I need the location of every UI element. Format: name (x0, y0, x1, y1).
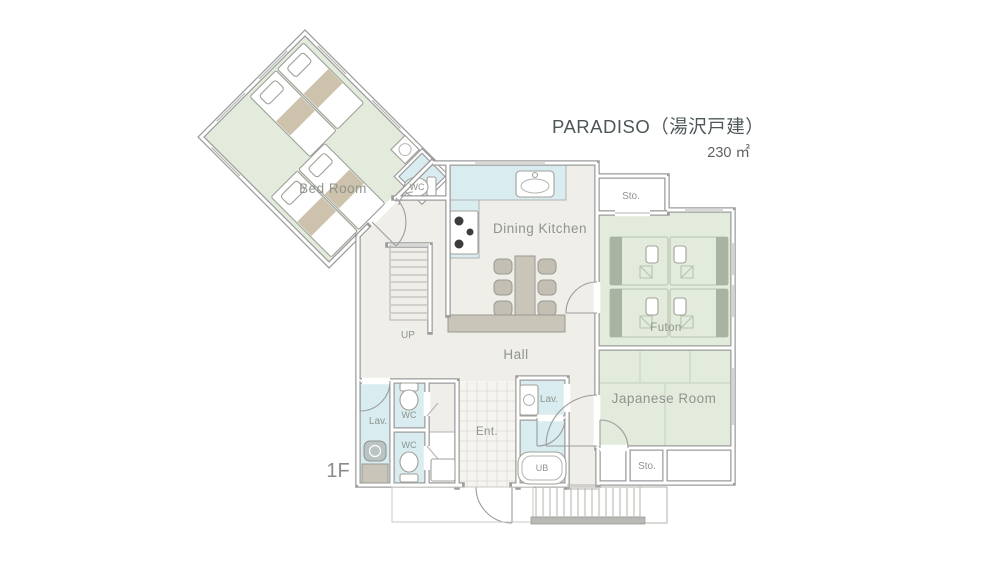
deck-steps (531, 487, 667, 524)
toilet-icon (400, 383, 418, 410)
washer-icon (362, 464, 388, 483)
dk-step (448, 315, 565, 332)
room-label-futon: Futon (650, 322, 681, 334)
room-label-entrance: Ent. (476, 426, 498, 438)
room-label-hall: Hall (503, 347, 528, 362)
room-label-unit-bath: UB (536, 463, 549, 473)
dining-table (494, 256, 556, 318)
room-label-storage-bottom: Sto. (638, 461, 656, 472)
page-title: PARADISO（湯沢戸建） (552, 116, 764, 137)
room-label-bedroom-wc: WC (410, 182, 425, 192)
room-label-japanese-room: Japanese Room (612, 391, 717, 406)
room-label-lavatory-left: Lav. (369, 416, 387, 427)
room-label-bedroom: Bed Room (299, 181, 367, 196)
room-label-wc-lower: WC (402, 440, 417, 450)
area-label: 230 ㎡ (707, 144, 750, 161)
toilet-icon (400, 452, 418, 482)
floor-label: 1F (326, 460, 349, 482)
room-label-wc-upper: WC (402, 410, 417, 420)
room-label-dining-kitchen: Dining Kitchen (493, 221, 587, 236)
room-label-lavatory-right: Lav. (540, 394, 558, 405)
shoe-cabinet (431, 459, 455, 481)
stairs-up-label: UP (401, 330, 415, 341)
washbasin-icon (364, 441, 386, 461)
stove-icon (450, 211, 478, 254)
vanity-sink-icon (520, 385, 538, 415)
room-label-storage-top: Sto. (622, 191, 640, 202)
kitchen-sink-icon (516, 171, 554, 197)
floorplan: PARADISO（湯沢戸建） 230 ㎡ 1F Bed Room WC Dini… (0, 0, 1000, 563)
